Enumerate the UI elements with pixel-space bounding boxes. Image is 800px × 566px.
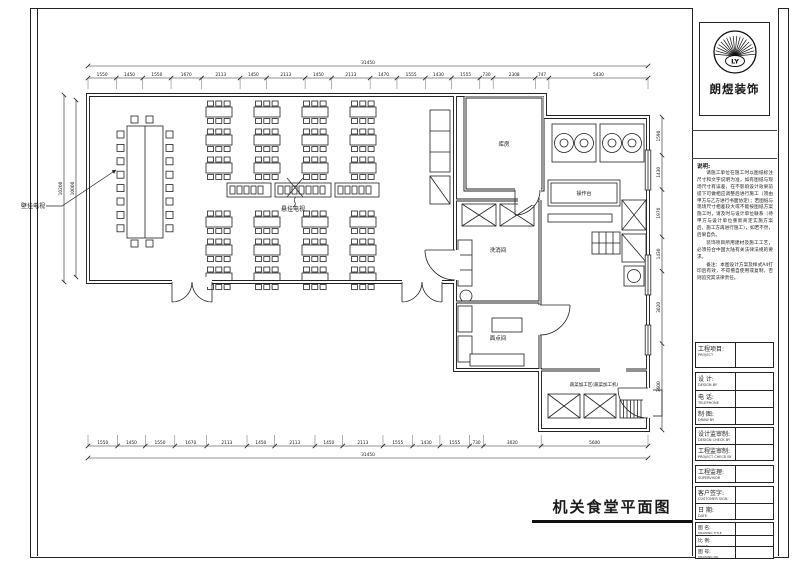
dim-label: 1670	[185, 440, 196, 446]
dim-label: 730	[472, 440, 480, 446]
dim-label: 1450	[248, 72, 259, 78]
dim-label: 1450	[124, 72, 135, 78]
field-value	[736, 445, 773, 460]
dim-label: 1670	[181, 72, 192, 78]
dim-label: 31450	[361, 60, 375, 66]
field-value	[736, 408, 773, 424]
dim-label: 1550	[97, 440, 108, 446]
dim-label: 5600	[589, 440, 600, 446]
field-label: 工程项目:	[698, 344, 733, 353]
dim-label: 3600	[656, 381, 662, 392]
field-row: 工程监理:SUPERVISOR	[696, 466, 773, 482]
dim-label: 1970	[656, 207, 662, 218]
field-label: 设 计:	[698, 374, 733, 383]
field-label: 日 期:	[698, 505, 733, 514]
field-value	[736, 373, 773, 390]
field-value	[736, 428, 773, 444]
field-value	[736, 536, 773, 547]
titleblock-separator	[692, 158, 777, 159]
notes-block: 说明: 请施工单位在施工时以图纸标注尺寸和文字说明为准，如有图纸与现场尺寸有误差…	[697, 162, 773, 284]
dim-label: 10200	[58, 181, 64, 195]
wash-room-label: 洗消间	[490, 246, 507, 254]
logo-monogram: LY	[731, 58, 739, 66]
dim-label: 2113	[221, 440, 232, 446]
field-label: 客户签字:	[698, 488, 733, 497]
dim-label: 1430	[421, 440, 432, 446]
field-row: 工程监审制:PROJECT CHECK BY	[696, 444, 773, 460]
storage-room-label: 库房	[498, 140, 510, 148]
titleblock-group-drawing: 图 名:DRAWING TITLE 比 例:SCALE 图 号:DRAWING …	[695, 522, 774, 559]
dim-label: 2113	[345, 72, 356, 78]
wall-tv-label: 壁挂电视	[21, 202, 45, 210]
field-label: 图 号:	[698, 548, 733, 555]
notes-paragraph: 备注：本图设计方案及样式A4打印后有效，不得擅自使用或复制，否则追究其法律责任。	[697, 263, 773, 284]
dim-label: 730	[482, 72, 490, 78]
field-row: 工程项目:PROJECT	[696, 343, 773, 367]
field-value	[736, 466, 773, 482]
field-value	[736, 504, 773, 519]
logo-icon: LY	[711, 28, 759, 76]
titleblock-group-project: 工程项目:PROJECT	[695, 342, 774, 368]
notes-heading: 说明:	[697, 162, 773, 170]
dim-label: 2113	[280, 72, 291, 78]
field-value	[736, 487, 773, 503]
notes-paragraph: 装饰项目所用建材及施工工艺，必须符合中国大陆有关法律法规的要求。	[697, 241, 773, 262]
dim-label: 1450	[313, 72, 324, 78]
dim-label: 2113	[215, 72, 226, 78]
field-label: 制 图:	[698, 409, 733, 418]
field-row: 图 名:DRAWING TITLE	[696, 523, 773, 535]
dim-label: 1450	[126, 440, 137, 446]
field-row: 比 例:SCALE	[696, 535, 773, 547]
company-logo: LY 朗煜装饰	[699, 22, 770, 116]
dim-label: 1450	[255, 440, 266, 446]
field-value	[736, 391, 773, 407]
field-row: 设 计:DESIGN BY	[696, 373, 773, 390]
field-label: 工程监理:	[698, 467, 733, 476]
field-label: 设计监审制:	[698, 429, 733, 438]
dim-label: 1430	[433, 72, 444, 78]
titleblock-group-check: 设计监审制:DESIGN CHECK BY 工程监审制:PROJECT CHEC…	[695, 427, 774, 461]
veg-area-label: 蔬菜加工区(蔬菜加工机)	[570, 381, 619, 388]
field-value	[736, 343, 773, 367]
dim-label: 1550	[151, 72, 162, 78]
field-row: 客户签字:CUSTOMER SIGN	[696, 487, 773, 503]
dim-label: 2113	[357, 440, 368, 446]
dim-label: 747	[538, 72, 546, 78]
pastry-room-label: 面点间	[490, 334, 507, 342]
field-value	[736, 523, 773, 535]
worktable-label: 操作台	[576, 190, 591, 197]
notes-paragraph: 请施工单位在施工时以图纸标注尺寸和文字说明为准，如有图纸与现场尺寸有误差，在不影…	[697, 171, 773, 240]
dim-label: 10000	[70, 181, 76, 195]
titleblock-separator	[692, 130, 777, 131]
floor-plan: 1550145015501670211314502113145021131470…	[0, 0, 800, 566]
dim-label: 1555	[449, 440, 460, 446]
field-label: 电 话:	[698, 392, 733, 401]
hanging-tv-label: 悬挂电视	[281, 205, 305, 213]
titleblock-group-design: 设 计:DESIGN BY 电 话:TELEPHONE 制 图:DRAW BY	[695, 372, 774, 425]
dim-label: 31450	[361, 452, 375, 458]
dim-label: 1555	[392, 440, 403, 446]
field-row: 设计监审制:DESIGN CHECK BY	[696, 428, 773, 444]
field-label: 比 例:	[698, 537, 733, 544]
dim-label: 1450	[323, 440, 334, 446]
dim-label: 3020	[656, 302, 662, 313]
titleblock-group-sign: 客户签字:CUSTOMER SIGN 日 期:DATE	[695, 486, 774, 520]
dim-label: 3020	[507, 440, 518, 446]
dim-label: 1470	[378, 72, 389, 78]
dim-label: 1590	[656, 130, 662, 141]
field-value	[736, 547, 773, 558]
field-label: 工程监审制:	[698, 446, 733, 455]
dim-label: 1430	[656, 167, 662, 178]
dim-label: 1555	[406, 72, 417, 78]
drawing-title: 机关食堂平面图	[532, 496, 692, 523]
dim-label: 5430	[593, 72, 604, 78]
field-row: 日 期:DATE	[696, 503, 773, 519]
dim-label: 1550	[155, 440, 166, 446]
dim-label: 1555	[460, 72, 471, 78]
dim-label: 1430	[656, 248, 662, 259]
dim-label: 2308	[509, 72, 520, 78]
field-row: 制 图:DRAW BY	[696, 407, 773, 424]
field-label: 图 名:	[698, 524, 733, 531]
dim-label: 2113	[289, 440, 300, 446]
field-row: 电 话:TELEPHONE	[696, 390, 773, 407]
company-name: 朗煜装饰	[700, 81, 769, 97]
dim-label: 1550	[97, 72, 108, 78]
titleblock-group-supervisor: 工程监理:SUPERVISOR	[695, 465, 774, 483]
field-row: 图 号:DRAWING NO.	[696, 546, 773, 558]
